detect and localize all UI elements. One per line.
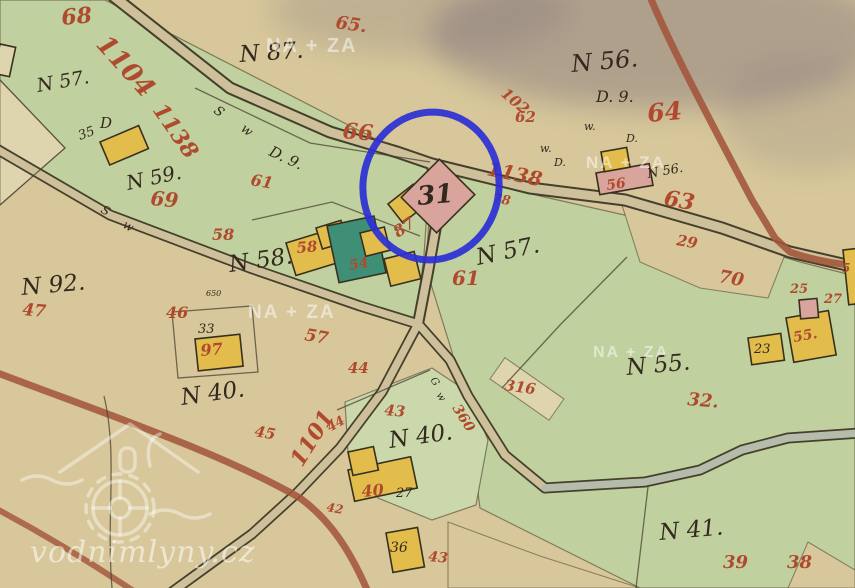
watermark-tag: NA + ZA — [266, 35, 358, 57]
parcel-label: D. 9. — [595, 87, 634, 106]
house-number: 23 — [753, 342, 771, 357]
red-number: 27 — [823, 292, 842, 307]
red-number: 58 — [212, 225, 234, 244]
building-40-wing — [348, 447, 378, 476]
watermark-tag: NA + ZA — [248, 302, 336, 323]
house-number: 58 — [296, 237, 319, 257]
red-number: 25 — [789, 282, 808, 297]
red-number: 62 — [515, 108, 536, 126]
red-number: 43 — [384, 401, 406, 421]
red-number: 29 — [674, 231, 699, 253]
house-number: 27 — [395, 486, 413, 501]
map-canvas[interactable]: N 57. D N 87. S w D. 9. N 56. D. 9. w. D… — [0, 0, 855, 588]
red-number: 46 — [166, 303, 188, 322]
red-number: 61 — [452, 266, 480, 290]
parcel-number-small: 650 — [206, 289, 221, 298]
house-number: 97 — [200, 339, 224, 360]
red-number: 69 — [150, 186, 180, 212]
boundary-letter: D. — [553, 156, 566, 169]
house-number: 36 — [390, 540, 408, 556]
boundary-letter: w. — [584, 120, 596, 133]
red-number: 45 — [253, 422, 277, 443]
red-number: 43 — [428, 549, 449, 567]
red-number: 70 — [717, 266, 746, 291]
red-number: 44 — [348, 359, 369, 377]
red-number: 32. — [687, 389, 720, 413]
house-number-31: 31 — [416, 179, 455, 212]
watermark-tag: NA + ZA — [593, 344, 669, 361]
red-number: 57 — [303, 325, 330, 349]
house-number: 40 — [361, 480, 385, 501]
house-number: 33 — [198, 322, 215, 337]
building-stone-small — [799, 298, 819, 318]
red-number: 68 — [60, 2, 93, 31]
red-number: 61 — [249, 170, 274, 193]
red-number: 38 — [787, 552, 813, 573]
house-number: 56 — [605, 175, 627, 194]
watermark-tag: NA + ZA — [586, 153, 666, 172]
watermark-site: vodnimlyny.cz — [30, 535, 256, 570]
red-number: 39 — [723, 552, 749, 573]
red-number: 5 — [842, 261, 850, 275]
boundary-letter: w. — [540, 142, 552, 155]
red-number: 47 — [22, 300, 47, 322]
parcel-label: N 56. — [569, 44, 639, 78]
red-number: 63 — [662, 185, 697, 216]
house-number: 54 — [348, 255, 370, 274]
red-number: 42 — [325, 500, 344, 517]
boundary-letter: D. — [625, 132, 638, 145]
red-number: 65. — [334, 12, 368, 37]
parcel-label: D — [99, 114, 112, 132]
red-number: 64 — [646, 96, 683, 128]
